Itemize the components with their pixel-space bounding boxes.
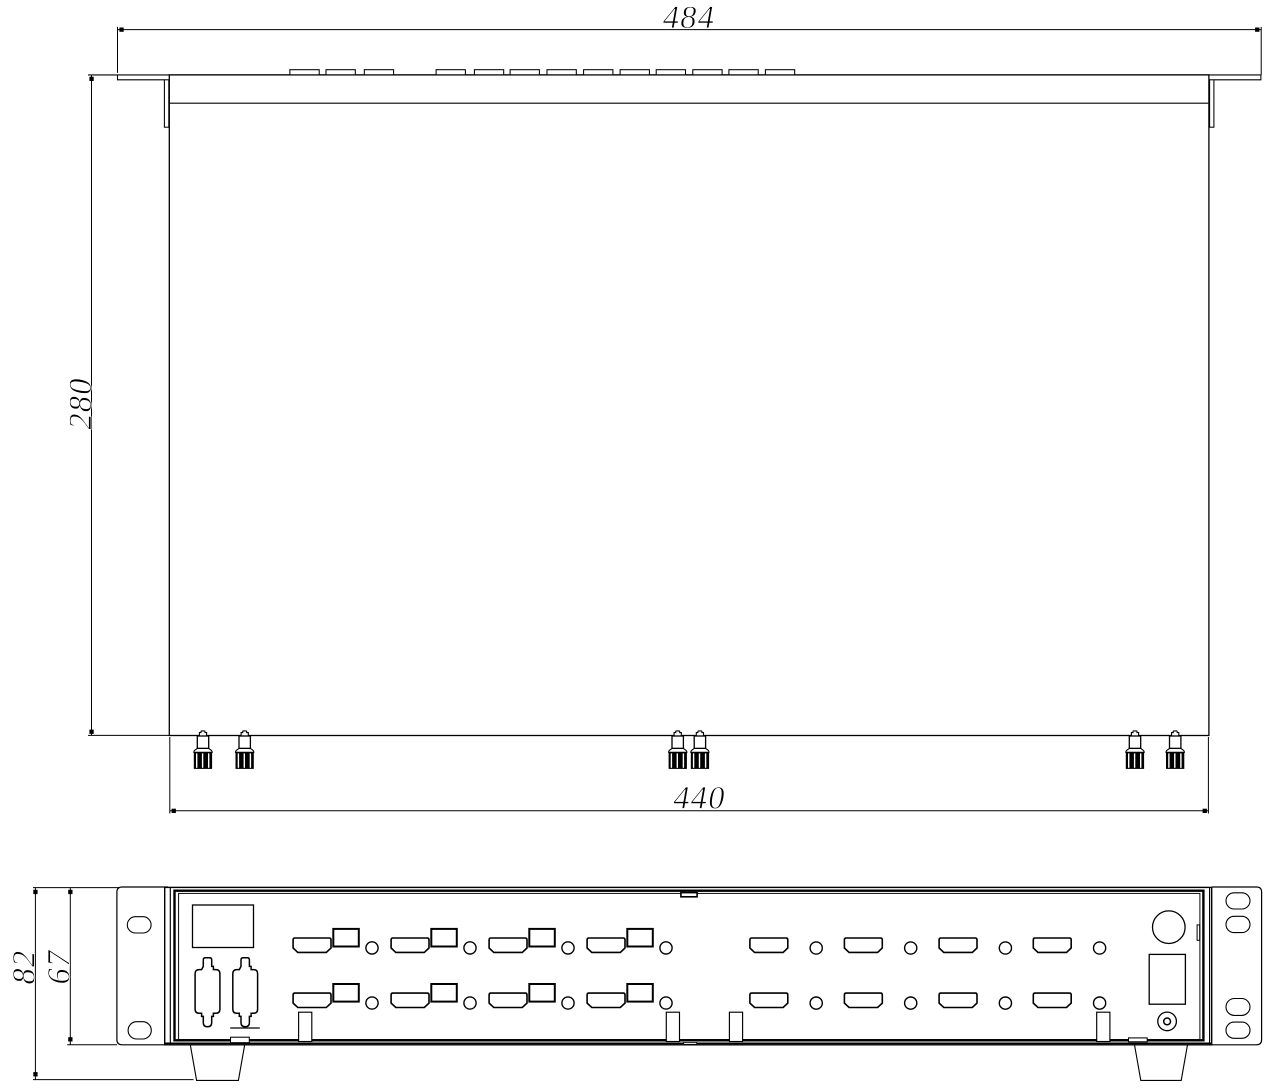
- svg-text:82: 82: [7, 950, 43, 985]
- svg-text:484: 484: [663, 0, 715, 36]
- svg-text:67: 67: [42, 949, 78, 984]
- svg-text:440: 440: [673, 781, 725, 817]
- svg-text:280: 280: [63, 377, 99, 429]
